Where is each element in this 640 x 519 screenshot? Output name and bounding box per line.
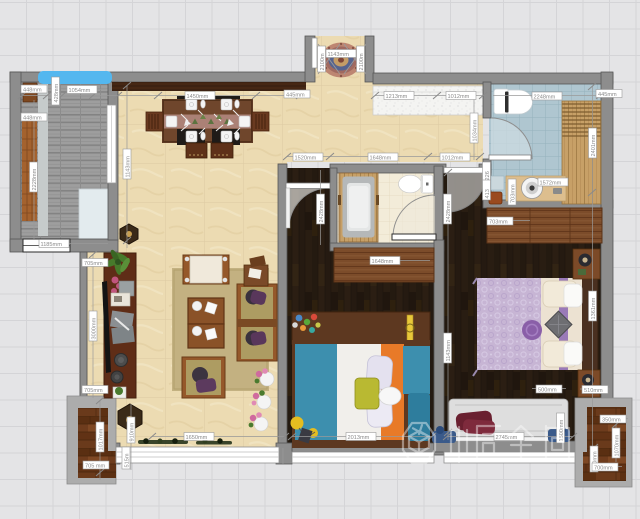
svg-text:703mm: 703mm: [489, 219, 508, 225]
svg-text:1070mm: 1070mm: [614, 434, 620, 456]
svg-text:2428mm: 2428mm: [446, 200, 452, 222]
svg-text:413: 413: [485, 189, 491, 198]
svg-text:1361mm: 1361mm: [591, 297, 597, 319]
svg-text:2100m: 2100m: [320, 53, 326, 70]
svg-text:445mm: 445mm: [598, 92, 617, 98]
svg-text:705 mm: 705 mm: [85, 463, 106, 469]
svg-text:2248mm: 2248mm: [534, 94, 556, 100]
svg-text:2745mm: 2745mm: [496, 435, 518, 441]
svg-text:510mm: 510mm: [584, 388, 603, 394]
svg-text:2401mm: 2401mm: [591, 134, 597, 156]
svg-text:1034mm: 1034mm: [472, 119, 478, 141]
svg-text:1143mm: 1143mm: [125, 156, 131, 178]
svg-text:1650mm: 1650mm: [186, 435, 208, 441]
svg-text:350mm: 350mm: [602, 417, 621, 423]
svg-text:1213mm: 1213mm: [386, 94, 408, 100]
svg-text:705mm: 705mm: [84, 261, 103, 267]
svg-text:428mm: 428mm: [54, 84, 60, 103]
svg-text:2228mm: 2228mm: [32, 168, 38, 190]
svg-text:2428mm: 2428mm: [319, 200, 325, 222]
svg-text:1648mm: 1648mm: [370, 155, 392, 161]
svg-text:500mm: 500mm: [538, 387, 557, 393]
svg-text:1143mm: 1143mm: [328, 52, 350, 58]
svg-text:1648mm: 1648mm: [372, 259, 394, 265]
svg-text:703mm: 703mm: [510, 184, 516, 203]
svg-text:1143mm: 1143mm: [446, 340, 452, 362]
svg-text:705mm: 705mm: [84, 388, 103, 394]
svg-text:1017mm: 1017mm: [98, 428, 104, 450]
svg-text:3000mm: 3000mm: [91, 317, 97, 339]
svg-text:700mm: 700mm: [594, 465, 613, 471]
svg-text:1012mm: 1012mm: [442, 155, 464, 161]
svg-text:1520mm: 1520mm: [295, 155, 317, 161]
svg-text:448mm: 448mm: [23, 87, 42, 93]
svg-text:515m: 515m: [124, 453, 130, 467]
svg-text:910mm: 910mm: [129, 423, 135, 442]
svg-text:2100m: 2100m: [359, 53, 365, 70]
svg-text:1572mm: 1572mm: [540, 180, 562, 186]
svg-text:448mm: 448mm: [23, 115, 42, 121]
svg-text:445mm: 445mm: [286, 92, 305, 98]
svg-text:1012mm: 1012mm: [448, 94, 470, 100]
svg-text:1185mm: 1185mm: [41, 242, 63, 248]
svg-text:226: 226: [485, 171, 491, 180]
svg-text:1450mm: 1450mm: [187, 94, 209, 100]
svg-text:1054mm: 1054mm: [69, 88, 91, 94]
svg-text:2013mm: 2013mm: [348, 435, 370, 441]
